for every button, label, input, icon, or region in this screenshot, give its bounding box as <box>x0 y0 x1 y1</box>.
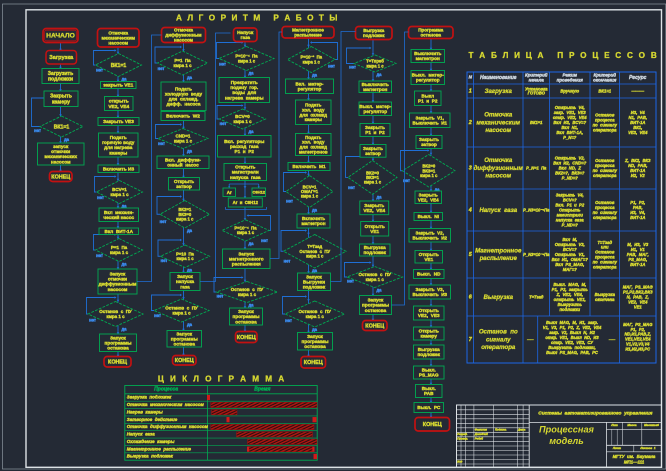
svg-text:1: 1 <box>469 89 472 95</box>
svg-text:да: да <box>122 261 128 266</box>
svg-text:BCV=1ОМАГ=1кмра 1 с: BCV=1ОМАГ=1кмра 1 с <box>301 184 319 198</box>
svg-text:Выкл. NI: Выкл. NI <box>418 214 439 219</box>
svg-text:ЗакрытьVE2, VE4: ЗакрытьVE2, VE4 <box>363 203 385 213</box>
svg-text:Р=10 Пакмра 1 с: Р=10 Пакмра 1 с <box>176 251 194 261</box>
svg-text:——: —— <box>526 337 534 341</box>
svg-text:Р=10⁻⁴ Пакмра 1 с: Р=10⁻⁴ Пакмра 1 с <box>235 54 258 64</box>
svg-text:Открытьзатвор: Открытьзатвор <box>174 179 194 189</box>
svg-text:да: да <box>249 129 255 134</box>
svg-text:Критерийокончания: Критерийокончания <box>593 73 617 83</box>
svg-text:КОНЕЦ: КОНЕЦ <box>51 174 70 180</box>
svg-text:Выгрузка: Выгрузка <box>483 294 513 301</box>
svg-text:Выгрузкаокончена: Выгрузкаокончена <box>595 292 616 302</box>
svg-text:нет: нет <box>403 178 410 183</box>
svg-text:Напуск газа: Напуск газа <box>127 432 155 437</box>
svg-text:да: да <box>249 302 255 307</box>
svg-text:Загрузка: Загрузка <box>485 88 513 95</box>
svg-text:BCV=0кмра 1 с: BCV=0кмра 1 с <box>233 114 252 124</box>
svg-text:Включить И3: Включить И3 <box>103 166 135 172</box>
svg-text:Т=Тпребкмра 1 с: Т=Тпребкмра 1 с <box>366 59 384 69</box>
svg-text:——: —— <box>608 337 616 341</box>
svg-text:Программаостанова: Программаостанова <box>418 28 443 38</box>
svg-text:———: ——— <box>630 89 644 94</box>
svg-text:Р=10⁻² Пакмра 1 с: Р=10⁻² Пакмра 1 с <box>301 55 323 65</box>
svg-text:ВК1=1: ВК1=1 <box>598 89 611 94</box>
svg-text:УстановкаГОТОВО: УстановкаГОТОВО <box>525 86 548 95</box>
svg-text:нет: нет <box>89 317 96 322</box>
svg-text:Процесса: Процесса <box>154 387 178 393</box>
svg-text:Выгрузкаподложек: Выгрузкаподложек <box>417 347 440 357</box>
svg-text:Ц И К Л О Г Р А М М А: Ц И К Л О Г Р А М М А <box>158 374 286 383</box>
svg-text:Наименование: Наименование <box>480 75 517 81</box>
svg-text:CND=1кмра 1 с: CND=1кмра 1 с <box>174 134 193 144</box>
svg-text:Т А Б Л И Ц А П Р О Ц Е С С: Т А Б Л И Ц А П Р О Ц Е С С О В <box>468 51 658 60</box>
svg-text:нет: нет <box>286 198 293 203</box>
svg-text:нет: нет <box>328 63 335 68</box>
svg-text:нет: нет <box>284 258 291 263</box>
svg-text:нет: нет <box>154 313 161 318</box>
svg-text:нет: нет <box>158 66 165 71</box>
svg-text:А Л Г О Р И Т М Р А Б О Т Ы: А Л Г О Р И Т М Р А Б О Т Ы <box>176 14 339 23</box>
svg-text:открытьVE2, VE4: открытьVE2, VE4 <box>108 100 129 110</box>
svg-text:Закрыть V1,Выключить И1: Закрыть V1,Выключить И1 <box>412 115 447 125</box>
svg-text:Выкл. ND: Выкл. ND <box>417 272 441 277</box>
svg-text:Вкл механи-ческий насос: Вкл механи-ческий насос <box>103 210 134 220</box>
svg-text:Масса: Масса <box>627 423 637 427</box>
svg-text:Включить М1: Включить М1 <box>292 164 326 170</box>
svg-text:Выкл. матер-регулятор: Выкл. матер-регулятор <box>412 73 444 83</box>
svg-text:Выкл. РС: Выкл. РС <box>417 405 441 410</box>
svg-text:3: 3 <box>469 166 472 172</box>
svg-text:Масштаб: Масштаб <box>644 423 659 427</box>
svg-text:нет: нет <box>261 238 268 243</box>
svg-text:Вкл М,Открыть V3,BCV=?Открыт: Вкл М,Открыть V3,BCV=?Открыть V1,Вкл И1,… <box>552 237 589 272</box>
svg-text:Отмочка диффузионным насосом: Отмочка диффузионным насосом <box>127 423 209 429</box>
svg-text:Лит: Лит <box>610 423 618 427</box>
svg-text:ВК1=1: ВК1=1 <box>111 63 127 69</box>
svg-text:4: 4 <box>468 208 472 214</box>
svg-text:МАГ, PS_MAGР1, Р2,ND,И1,РАВ,: МАГ, PS_MAGР1, Р2,ND,И1,РАВ,Z,VE1,VE2,VE… <box>623 322 653 352</box>
svg-text:Выключитьмагнетрон: Выключитьмагнетрон <box>414 51 441 61</box>
svg-text:Вкл ВИТ-1А: Вкл ВИТ-1А <box>104 229 133 234</box>
svg-text:Включить W2: Включить W2 <box>166 114 200 120</box>
svg-text:Вкл. матер-регулятор: Вкл. матер-регулятор <box>295 81 323 91</box>
svg-text:Магнетронное распыление: Магнетронное распыление <box>127 446 192 451</box>
svg-text:да: да <box>187 75 193 80</box>
svg-text:нет: нет <box>160 219 167 224</box>
svg-text:Магнетронноераспыление: Магнетронноераспыление <box>292 27 324 37</box>
svg-text:Р=1 Пакмра 1 с: Р=1 Пакмра 1 с <box>110 245 129 255</box>
svg-text:Системы автоматизированного: Системы автоматизированного управления <box>538 411 652 417</box>
svg-text:Затворное действие: Затворное действие <box>127 416 178 422</box>
svg-text:да: да <box>312 268 318 273</box>
svg-text:BCV=1кмра 1 с: BCV=1кмра 1 с <box>110 187 129 197</box>
svg-text:Выкл MAG, М, И1, закр.V1,: Выкл MAG, М, И1, закр.V1, V3, Р1, Р2, Z,… <box>543 320 602 355</box>
svg-text:Открытькамеру: Открытькамеру <box>419 329 439 339</box>
svg-text:P_N=1 Па: P_N=1 Па <box>526 165 547 170</box>
svg-text:Напуск газа: Напуск газа <box>479 207 517 214</box>
svg-text:ВК1=1: ВК1=1 <box>530 120 543 125</box>
svg-text:закрыть VE1: закрыть VE1 <box>103 83 133 89</box>
svg-text:Дата: Дата <box>517 428 526 432</box>
svg-text:T=Тзад: T=Тзад <box>529 294 544 299</box>
svg-text:Отмочка механическим насосом: Отмочка механическим насосом <box>127 402 205 407</box>
svg-text:Ar и C6H12: Ar и C6H12 <box>233 200 259 205</box>
svg-text:Фамилия: Фамилия <box>475 428 488 432</box>
svg-text:да: да <box>312 327 318 332</box>
svg-text:Выключитьмагнетрон: Выключитьмагнетрон <box>362 82 389 92</box>
svg-text:НАЧАЛО: НАЧАЛО <box>46 33 75 40</box>
svg-text:нет: нет <box>285 318 292 323</box>
svg-text:Закрыть V3,Выключить И3: Закрыть V3,Выключить И3 <box>412 287 447 297</box>
svg-text:Закрытьзатвор: Закрытьзатвор <box>363 146 383 156</box>
svg-text:Загрузка подложек: Загрузка подложек <box>127 395 172 400</box>
svg-text:C6H12: C6H12 <box>252 190 265 195</box>
svg-text:Вкл. диффузи-онный насос: Вкл. диффузи-онный насос <box>165 156 201 167</box>
svg-text:КОНЕЦ: КОНЕЦ <box>304 360 323 366</box>
svg-text:ВК1=1: ВК1=1 <box>54 124 70 130</box>
svg-text:нет: нет <box>348 185 355 190</box>
svg-text:Закрытьзатвор: Закрытьзатвор <box>419 137 439 147</box>
svg-text:Ar: Ar <box>227 190 232 195</box>
svg-text:Листов 1: Листов 1 <box>639 446 656 450</box>
svg-text:P_N3=10⁻⁴Па: P_N3=10⁻⁴Па <box>523 252 550 257</box>
svg-text:нет: нет <box>34 128 41 133</box>
svg-text:2: 2 <box>468 120 472 126</box>
svg-text:Включитьмагнетрон: Включитьмагнетрон <box>301 216 325 226</box>
svg-text:Выкл. матер-регулятор: Выкл. матер-регулятор <box>359 104 391 114</box>
svg-text:КОНЕЦ: КОНЕЦ <box>237 335 256 341</box>
svg-text:Ресурс: Ресурс <box>629 75 647 81</box>
svg-text:Изд: Изд <box>457 460 462 464</box>
svg-text:Р=10⁻⁴ Пакмра 1 с: Р=10⁻⁴ Пакмра 1 с <box>234 226 257 236</box>
svg-text:КОНЕЦ: КОНЕЦ <box>175 358 194 364</box>
svg-text:Время: Время <box>254 387 270 393</box>
svg-text:да: да <box>187 228 193 233</box>
svg-text:Лист: Лист <box>612 446 622 450</box>
svg-text:Остановпроцессапо сигналуопер: Остановпроцессапо сигналуоператора <box>593 113 618 133</box>
svg-text:да: да <box>312 72 318 77</box>
svg-text:Охлаждение камеры: Охлаждение камеры <box>127 439 175 444</box>
svg-text:да: да <box>249 241 255 246</box>
svg-text:Нагрев камеры: Нагрев камеры <box>127 409 163 414</box>
svg-text:нет: нет <box>158 141 165 146</box>
svg-text:да: да <box>122 326 128 331</box>
svg-text:Загрузка: Загрузка <box>49 55 74 61</box>
svg-text:да: да <box>122 76 128 81</box>
svg-text:ОткрытьVE2, VE3: ОткрытьVE2, VE3 <box>418 308 440 318</box>
svg-text:нет: нет <box>220 121 227 126</box>
svg-text:да: да <box>249 70 255 75</box>
svg-text:Подпись: Подпись <box>495 428 507 432</box>
svg-text:да: да <box>377 287 383 292</box>
svg-text:Р1, Р2,РАВ,И3, V4,ВИТ-1А: Р1, Р2,РАВ,И3, V4,ВИТ-1А <box>630 200 645 220</box>
svg-text:КОНЕЦ: КОНЕЦ <box>423 422 442 428</box>
svg-text:Вручную: Вручную <box>560 88 579 93</box>
svg-text:Закрытькамеру: Закрытькамеру <box>50 94 72 106</box>
svg-text:КОНЕЦ: КОНЕЦ <box>365 323 384 329</box>
svg-text:да: да <box>377 72 383 77</box>
svg-text:Закрыть V2,Выключить И2: Закрыть V2,Выключить И2 <box>412 230 447 240</box>
svg-text:да: да <box>187 267 193 272</box>
svg-text:Остановпроцессапо сигналуопер: Остановпроцессапо сигналуоператора <box>593 200 618 220</box>
svg-text:нет: нет <box>96 253 103 258</box>
svg-text:нет: нет <box>219 61 226 66</box>
svg-text:да: да <box>312 207 318 212</box>
svg-text:да: да <box>377 194 383 199</box>
svg-text:Выгрузкаподложек: Выгрузкаподложек <box>363 28 385 38</box>
svg-text:Открыть V4,закр. VE1, VE3от: Открыть V4,закр. VE1, VE3откр. VE2, VE4В… <box>553 105 587 140</box>
svg-text:нет: нет <box>349 64 356 69</box>
svg-text:Закрыть VE3: Закрыть VE3 <box>103 119 134 125</box>
svg-text:да: да <box>64 137 70 142</box>
svg-text:P_N3=10⁻⁴Па: P_N3=10⁻⁴Па <box>523 207 550 212</box>
svg-text:ЗакрытьР1 и Р2: ЗакрытьР1 и Р2 <box>365 125 385 135</box>
svg-text:Остановпроцессапо сигналуопер: Остановпроцессапо сигналуоператора <box>593 158 618 178</box>
svg-text:Загрузитьподложки: Загрузитьподложки <box>48 71 73 83</box>
svg-text:да: да <box>187 148 193 153</box>
svg-text:Магнетронноераспыление: Магнетронноераспыление <box>475 248 522 263</box>
svg-text:ЗакрытьVE2, VE4: ЗакрытьVE2, VE4 <box>418 192 439 202</box>
svg-text:да: да <box>187 322 193 327</box>
svg-text:КОНЕЦ: КОНЕЦ <box>108 360 127 366</box>
svg-text:Выгрузка подложек: Выгрузка подложек <box>127 454 174 459</box>
svg-text:Выгрузкаподложек: Выгрузкаподложек <box>363 245 386 255</box>
svg-text:Р=1 Пакмра 1 с: Р=1 Пакмра 1 с <box>173 58 192 68</box>
